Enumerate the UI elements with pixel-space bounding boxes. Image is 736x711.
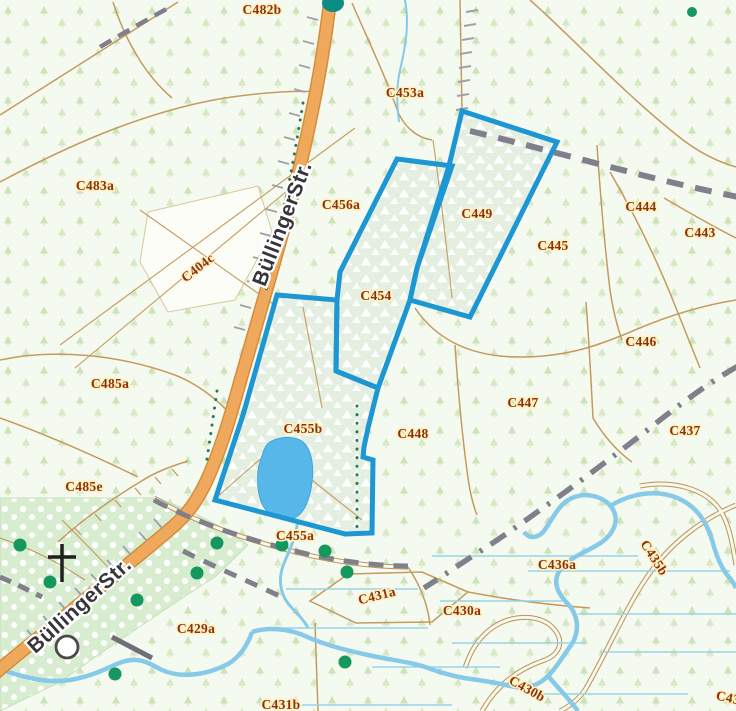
map-viewport[interactable]: C482b C453a C483a C404c C456a C449 C444 …	[0, 0, 736, 711]
parcel-label-c430a: C430a	[443, 603, 481, 618]
parcel-label-c483a: C483a	[76, 178, 114, 193]
parcel-label-c485a: C485a	[91, 376, 129, 391]
parcel-label-c455a: C455a	[276, 528, 314, 543]
parcel-label-c447: C447	[507, 395, 538, 410]
map-canvas[interactable]: C482b C453a C483a C404c C456a C449 C444 …	[0, 0, 736, 711]
parcel-label-c436a: C436a	[538, 557, 576, 572]
parcel-label-c454: C454	[360, 288, 391, 303]
parcel-label-c443: C443	[684, 225, 715, 240]
parcel-label-c445: C445	[537, 238, 568, 253]
parcel-label-c453a: C453a	[386, 85, 424, 100]
parcel-label-c448: C448	[397, 426, 428, 441]
parcel-label-c449: C449	[461, 206, 492, 221]
parcel-label-c429a: C429a	[177, 621, 215, 636]
parcel-label-c431b: C431b	[261, 697, 300, 711]
parcel-label-c485e: C485e	[65, 479, 103, 494]
parcel-label-c437: C437	[669, 423, 700, 438]
parcel-label-c455b: C455b	[283, 421, 322, 436]
parcel-label-c446: C446	[625, 334, 656, 349]
pond	[258, 437, 313, 519]
parcel-label-c456a: C456a	[322, 197, 360, 212]
parcel-label-c444: C444	[625, 199, 656, 214]
parcel-label-c482b: C482b	[242, 2, 281, 17]
